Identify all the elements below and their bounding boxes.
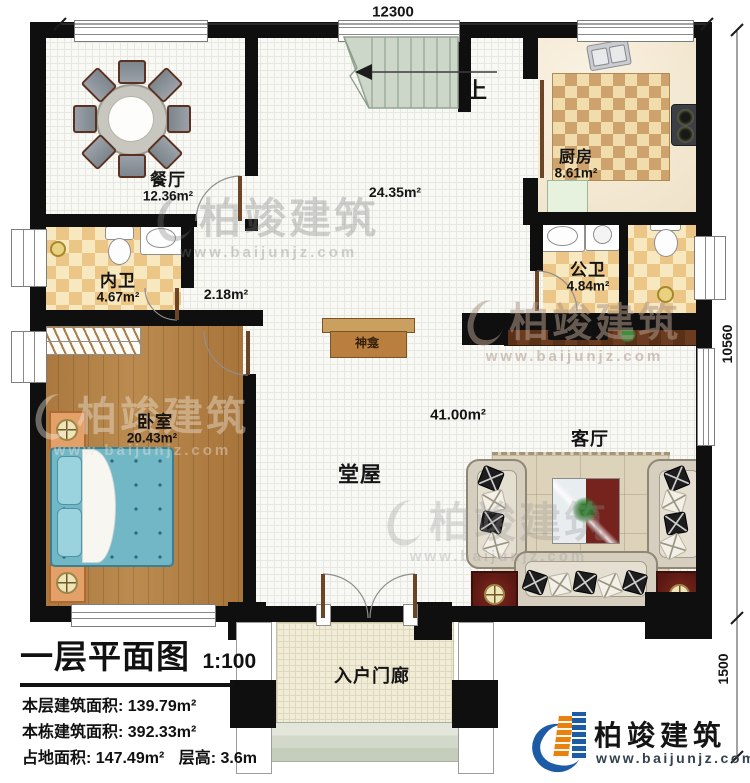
dining-chair — [73, 105, 97, 133]
room-label-hall: 堂屋 — [338, 465, 382, 486]
bed-sheet — [82, 449, 116, 563]
room-area-inner-bath: 4.67m² — [97, 290, 140, 304]
window-publicbath-east — [694, 236, 726, 300]
room-label-inner-bath: 内卫 — [100, 273, 136, 290]
window-living-east — [697, 348, 715, 446]
dining-table-top — [108, 96, 154, 142]
sink-inner — [146, 228, 176, 248]
wall-entry-block — [414, 602, 452, 640]
room-area-dining: 12.36m² — [143, 189, 193, 203]
room-area-kitchen: 8.61m² — [555, 166, 598, 180]
sofa-pillow — [547, 572, 573, 597]
wall-dining-stub — [245, 219, 258, 231]
fridge — [547, 180, 588, 215]
area-corridor: 2.18m² — [204, 287, 248, 301]
title-underline — [20, 683, 234, 687]
nightstand — [49, 411, 86, 450]
window-bedroom-south — [71, 604, 216, 627]
sink-public — [547, 226, 578, 246]
bed-pillow — [57, 508, 82, 557]
sofa-pillow — [572, 570, 597, 595]
stat-land-area: 占地面积: 147.49m² 层高: 3.6m — [22, 744, 257, 768]
wall-tv-end-block — [462, 313, 508, 345]
room-label-public-bath: 公卫 — [570, 262, 606, 279]
dimension-height-porch: 1500 — [715, 653, 731, 684]
dining-chair — [118, 154, 146, 178]
wall-innerbath-east — [181, 214, 194, 288]
toilet-public-bowl — [654, 229, 678, 257]
plan-scale: 1:100 — [202, 650, 256, 673]
window-dining-north — [74, 20, 208, 42]
area-stair-hall: 24.35m² — [369, 185, 421, 199]
entry-door-frame — [316, 604, 331, 626]
wall-corner-block — [645, 592, 712, 639]
floor-drain — [50, 241, 66, 257]
wall-publicbath-west — [530, 225, 543, 271]
brand-name: 柏竣建筑 — [594, 714, 726, 754]
nightstand — [49, 564, 86, 603]
toilet-inner-bowl — [108, 238, 131, 265]
brand-logo: 柏竣建筑 www.baijunjz.com — [532, 706, 732, 776]
wall-bedroom-north — [43, 310, 263, 326]
room-label-living: 客厅 — [571, 430, 609, 448]
wall-dining-hall — [245, 35, 258, 176]
room-label-dining: 餐厅 — [150, 172, 186, 189]
window-bedroom-west — [11, 331, 47, 383]
window-innerbath-west — [11, 229, 47, 287]
shrine-label: 神龛 — [355, 337, 379, 349]
wall-kitchen-south — [523, 212, 712, 225]
wall-kitchen-west-a — [523, 35, 538, 79]
room-label-bedroom: 卧室 — [137, 414, 173, 431]
title-block: 一层平面图 1:100 — [20, 630, 280, 687]
room-area-bedroom: 20.43m² — [127, 431, 177, 445]
window-kitchen-north — [577, 20, 694, 42]
wardrobe — [46, 327, 141, 355]
dimension-height-main: 10560 — [719, 325, 735, 364]
wall-dining-bath — [43, 214, 197, 227]
brand-logo-building-blue — [572, 712, 586, 760]
entry-door-frame — [403, 604, 418, 626]
room-area-public-bath: 4.84m² — [567, 279, 610, 293]
porch-column — [230, 680, 276, 728]
dining-chair — [118, 60, 146, 84]
porch-column — [452, 680, 498, 728]
room-label-kitchen: 厨房 — [559, 150, 593, 166]
wall-bedroom-east — [243, 374, 256, 610]
room-label-porch: 入户门廊 — [334, 667, 410, 685]
wall-publicbath-mid — [619, 225, 628, 317]
stat-floor-area: 本层建筑面积: 139.79m² — [22, 692, 196, 716]
tv — [548, 330, 608, 340]
room-area-hall: 41.00m² — [430, 408, 486, 423]
bed — [50, 447, 174, 567]
stat-floor-height: 层高: 3.6m — [179, 750, 257, 767]
stairs-up-label: 上 — [465, 80, 487, 102]
shower-fixture — [657, 286, 674, 303]
dining-chair — [167, 105, 191, 133]
stat-building-area: 本栋建筑面积: 392.33m² — [22, 718, 196, 742]
brand-website: www.baijunjz.com — [596, 750, 750, 766]
bed-pillow — [57, 456, 82, 505]
dimension-width: 12300 — [372, 4, 414, 21]
page-title: 一层平面图 — [20, 638, 190, 675]
coffee-table-plant — [572, 497, 598, 523]
window-stairs-north — [338, 20, 460, 42]
porch-steps — [262, 722, 468, 762]
floor-plan: 柏竣建筑 www.baijunjz.com 柏竣建筑 www.baijunjz.… — [0, 0, 750, 783]
